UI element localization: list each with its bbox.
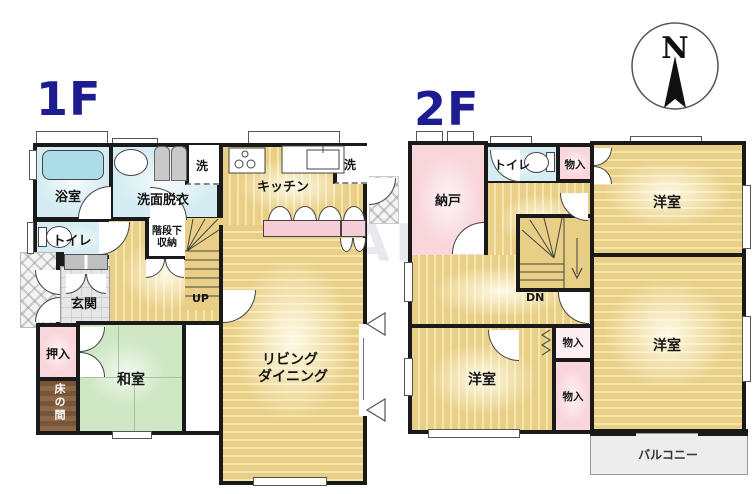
- room-label: 玄関: [71, 293, 97, 312]
- window: [742, 185, 751, 249]
- room-label: 洋室: [468, 369, 496, 389]
- room-label: 洗: [196, 157, 208, 174]
- wall-stub: [590, 429, 636, 436]
- room-label: キッチン: [257, 176, 309, 195]
- room-label: 収納: [157, 234, 177, 249]
- floorplan-image: LALAHOUSE 1F: [0, 0, 754, 494]
- stairs-down-icon: [520, 218, 590, 288]
- casement-window-icon: [366, 311, 388, 337]
- stairs-down-label: DN: [526, 291, 544, 304]
- room-label: 和室: [117, 369, 145, 389]
- floor2-label: 2F: [414, 82, 479, 136]
- room-label: 物入: [565, 157, 586, 172]
- balcony-label: バルコニー: [638, 446, 698, 463]
- bathtub-icon: [42, 150, 104, 180]
- room-label: トイレ: [494, 156, 530, 173]
- accordion-door-icon: [540, 330, 552, 358]
- window-pane: [363, 338, 364, 400]
- room-label: 押入: [46, 345, 70, 362]
- strip-1f: [182, 321, 223, 435]
- window: [112, 431, 152, 439]
- stairs-2f: [516, 214, 594, 292]
- room-label: 納戸: [435, 190, 461, 209]
- compass-icon: N: [629, 20, 721, 112]
- room-label: 床の間: [51, 383, 67, 422]
- kitchen-sink-icon: [281, 145, 345, 174]
- stairs-up-label: UP: [192, 292, 209, 305]
- room-label: ダイニング: [258, 366, 328, 386]
- floor1-label: 1F: [36, 72, 101, 126]
- shoe-cabinet: [64, 254, 108, 270]
- window: [742, 316, 751, 382]
- window: [27, 222, 34, 254]
- window: [428, 429, 520, 438]
- room-label: 洋室: [653, 335, 681, 355]
- room-label: 洋室: [653, 192, 681, 212]
- window: [29, 150, 37, 180]
- kitchen-counter: [263, 220, 341, 237]
- kitchen-counter: [341, 220, 366, 237]
- room-label: 洗面脱衣: [137, 189, 189, 208]
- sink-icon: [114, 149, 148, 176]
- room-label: 浴室: [55, 186, 81, 205]
- washer-icon: [154, 146, 170, 181]
- stove-icon: [228, 147, 266, 174]
- room-label: 物入: [563, 335, 584, 350]
- washer-icon: [171, 146, 187, 181]
- room-label: トイレ: [52, 230, 91, 249]
- window: [404, 262, 413, 302]
- wall-stub: [698, 429, 748, 436]
- window: [253, 477, 327, 486]
- casement-window-icon: [366, 397, 388, 423]
- room-label: 洗: [344, 156, 356, 173]
- window: [404, 358, 413, 396]
- room-label: 物入: [563, 389, 584, 404]
